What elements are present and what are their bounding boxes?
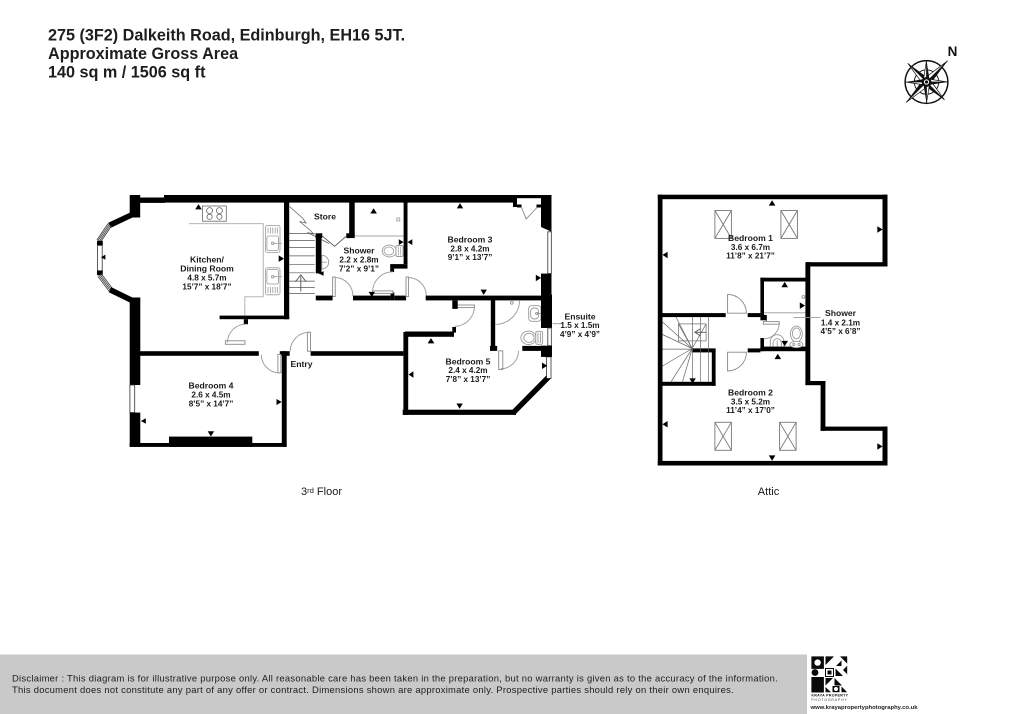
svg-text:This document does not constit: This document does not constitute any pa…	[12, 684, 734, 695]
svg-text:N: N	[948, 44, 958, 59]
svg-text:275 (3F2) Dalkeith Road, Edinb: 275 (3F2) Dalkeith Road, Edinburgh, EH16…	[48, 27, 405, 45]
svg-text:11’4” x 17’0”: 11’4” x 17’0”	[726, 406, 775, 415]
svg-text:www.krayapropertyphotography.c: www.krayapropertyphotography.co.uk	[810, 705, 919, 711]
svg-text:4’9” x 4’9”: 4’9” x 4’9”	[560, 330, 600, 339]
svg-text:7’2” x 9’1”: 7’2” x 9’1”	[339, 264, 379, 273]
svg-text:15’7” x 18’7”: 15’7” x 18’7”	[182, 283, 231, 292]
svg-text:7’8” x 13’7”: 7’8” x 13’7”	[446, 375, 491, 384]
svg-text:Bedroom 2: Bedroom 2	[728, 388, 773, 398]
svg-text:Dining Room: Dining Room	[180, 264, 234, 274]
svg-text:1.5 x 1.5m: 1.5 x 1.5m	[560, 321, 599, 330]
svg-text:Disclaimer : This diagram is f: Disclaimer : This diagram is for illustr…	[12, 673, 778, 684]
svg-text:Bedroom 1: Bedroom 1	[728, 233, 773, 243]
svg-text:9’1” x 13’7”: 9’1” x 13’7”	[448, 253, 493, 262]
svg-text:Bedroom 5: Bedroom 5	[446, 356, 491, 366]
svg-text:Entry: Entry	[291, 359, 313, 369]
svg-text:Ensuite: Ensuite	[564, 311, 595, 321]
svg-text:8’5” x 14’7”: 8’5” x 14’7”	[189, 399, 234, 408]
svg-text:4’5” x 6’8”: 4’5” x 6’8”	[820, 327, 860, 336]
svg-text:Attic: Attic	[758, 486, 780, 498]
svg-text:140 sq m / 1506 sq ft: 140 sq m / 1506 sq ft	[48, 64, 206, 82]
svg-text:Bedroom 3: Bedroom 3	[448, 235, 493, 245]
svg-text:KRAYA PROPERTY: KRAYA PROPERTY	[811, 693, 848, 697]
svg-text:Shower: Shower	[343, 246, 375, 256]
svg-text:2.6 x 4.5m: 2.6 x 4.5m	[191, 391, 230, 400]
svg-text:4.8 x 5.7m: 4.8 x 5.7m	[187, 274, 226, 283]
svg-text:PHOTOGRAPHY: PHOTOGRAPHY	[811, 698, 847, 702]
svg-text:Store: Store	[314, 212, 336, 222]
svg-text:Approximate Gross Area: Approximate Gross Area	[48, 45, 239, 63]
svg-text:Shower: Shower	[825, 308, 857, 318]
svg-text:11’8” x 21’7”: 11’8” x 21’7”	[726, 251, 775, 260]
svg-text:Bedroom 4: Bedroom 4	[189, 381, 234, 391]
svg-text:2.2 x 2.8m: 2.2 x 2.8m	[339, 256, 378, 265]
svg-text:1.4 x 2.1m: 1.4 x 2.1m	[821, 318, 860, 327]
